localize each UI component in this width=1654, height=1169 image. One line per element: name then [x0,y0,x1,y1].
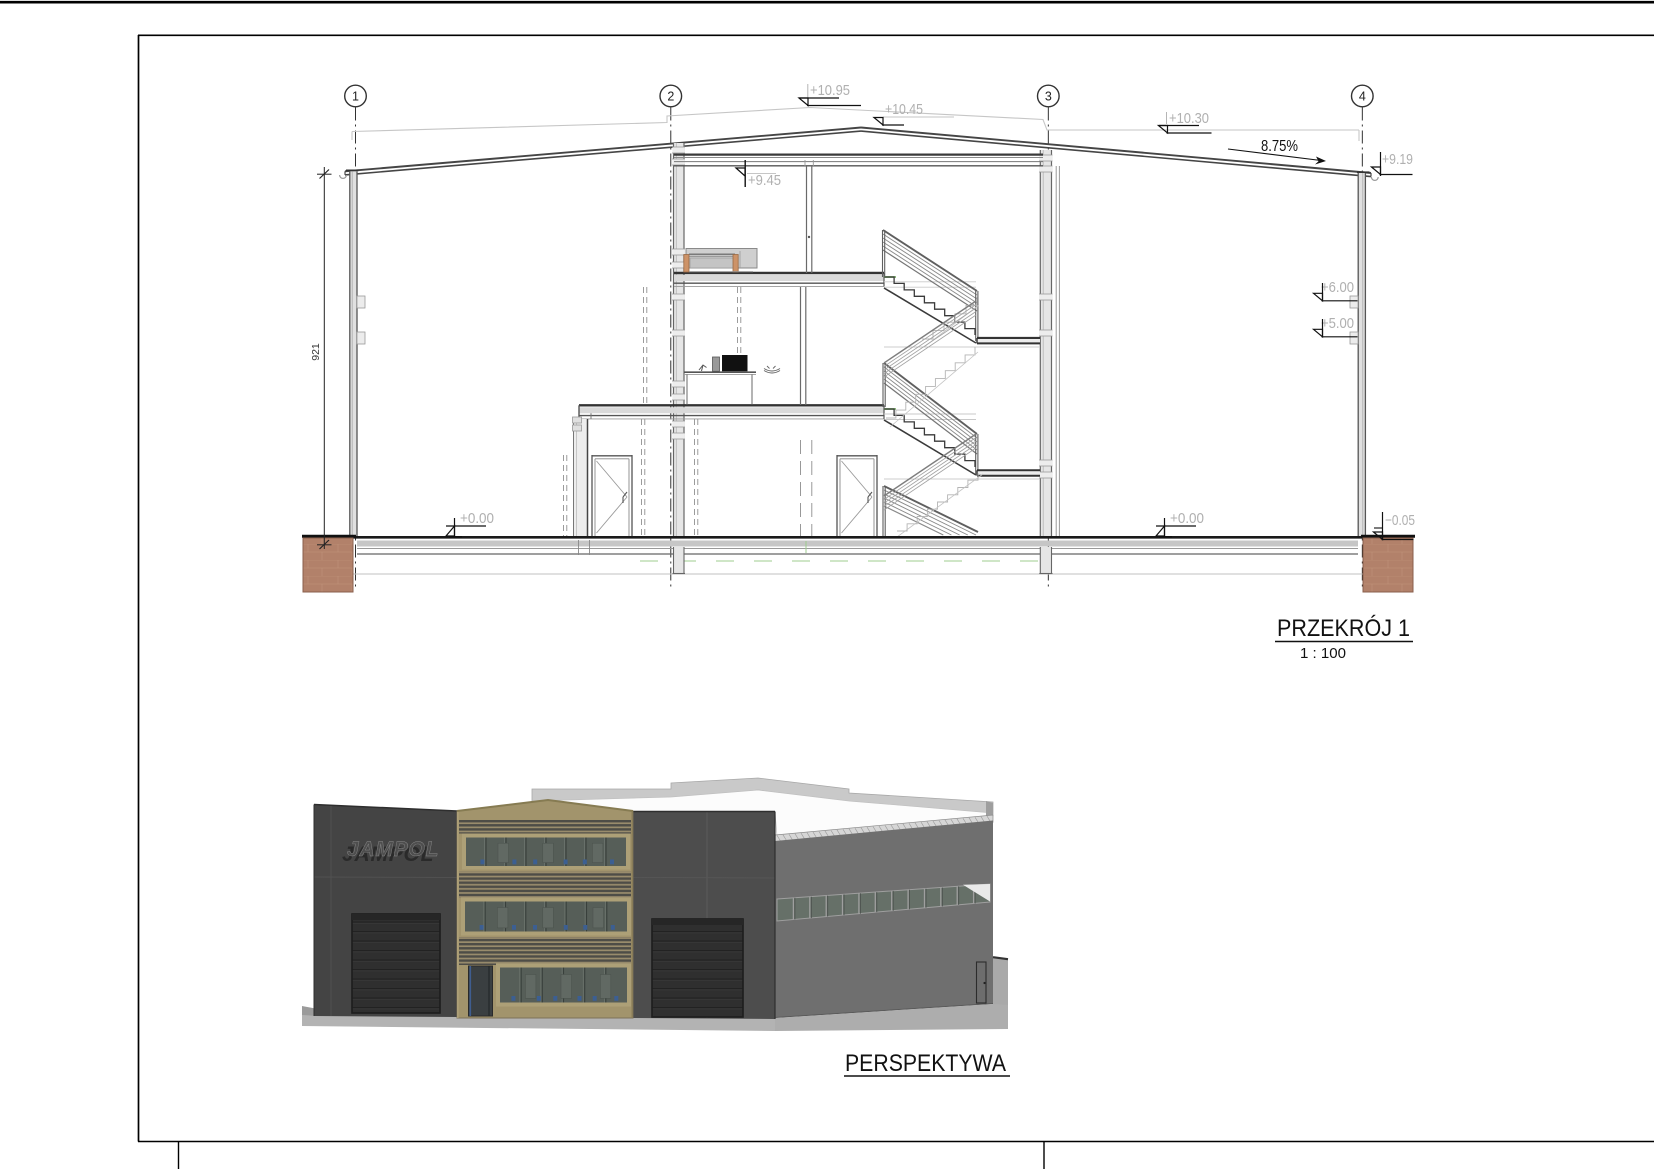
svg-text:+5.00: +5.00 [1321,315,1354,332]
svg-text:+0.00: +0.00 [1170,510,1204,527]
svg-text:JAMPOL: JAMPOL [347,838,439,861]
svg-text:PRZEKRÓJ 1: PRZEKRÓJ 1 [1277,615,1410,642]
svg-text:+6.00: +6.00 [1321,279,1354,296]
svg-text:+10.45: +10.45 [885,101,923,118]
svg-text:+10.95: +10.95 [810,82,850,99]
svg-text:+9.45: +9.45 [748,172,781,189]
svg-text:3: 3 [1045,90,1052,104]
svg-text:8.75%: 8.75% [1261,138,1298,155]
svg-text:+0.00: +0.00 [460,510,494,527]
svg-text:1 : 100: 1 : 100 [1300,645,1346,662]
svg-text:1: 1 [352,90,359,104]
svg-text:+10.30: +10.30 [1169,110,1209,127]
svg-text:−0.05: −0.05 [1385,512,1415,529]
svg-text:+9.19: +9.19 [1382,151,1413,168]
svg-text:4: 4 [1359,90,1366,104]
svg-text:PERSPEKTYWA: PERSPEKTYWA [845,1050,1007,1077]
svg-text:2: 2 [667,90,674,104]
svg-text:921: 921 [310,343,322,361]
